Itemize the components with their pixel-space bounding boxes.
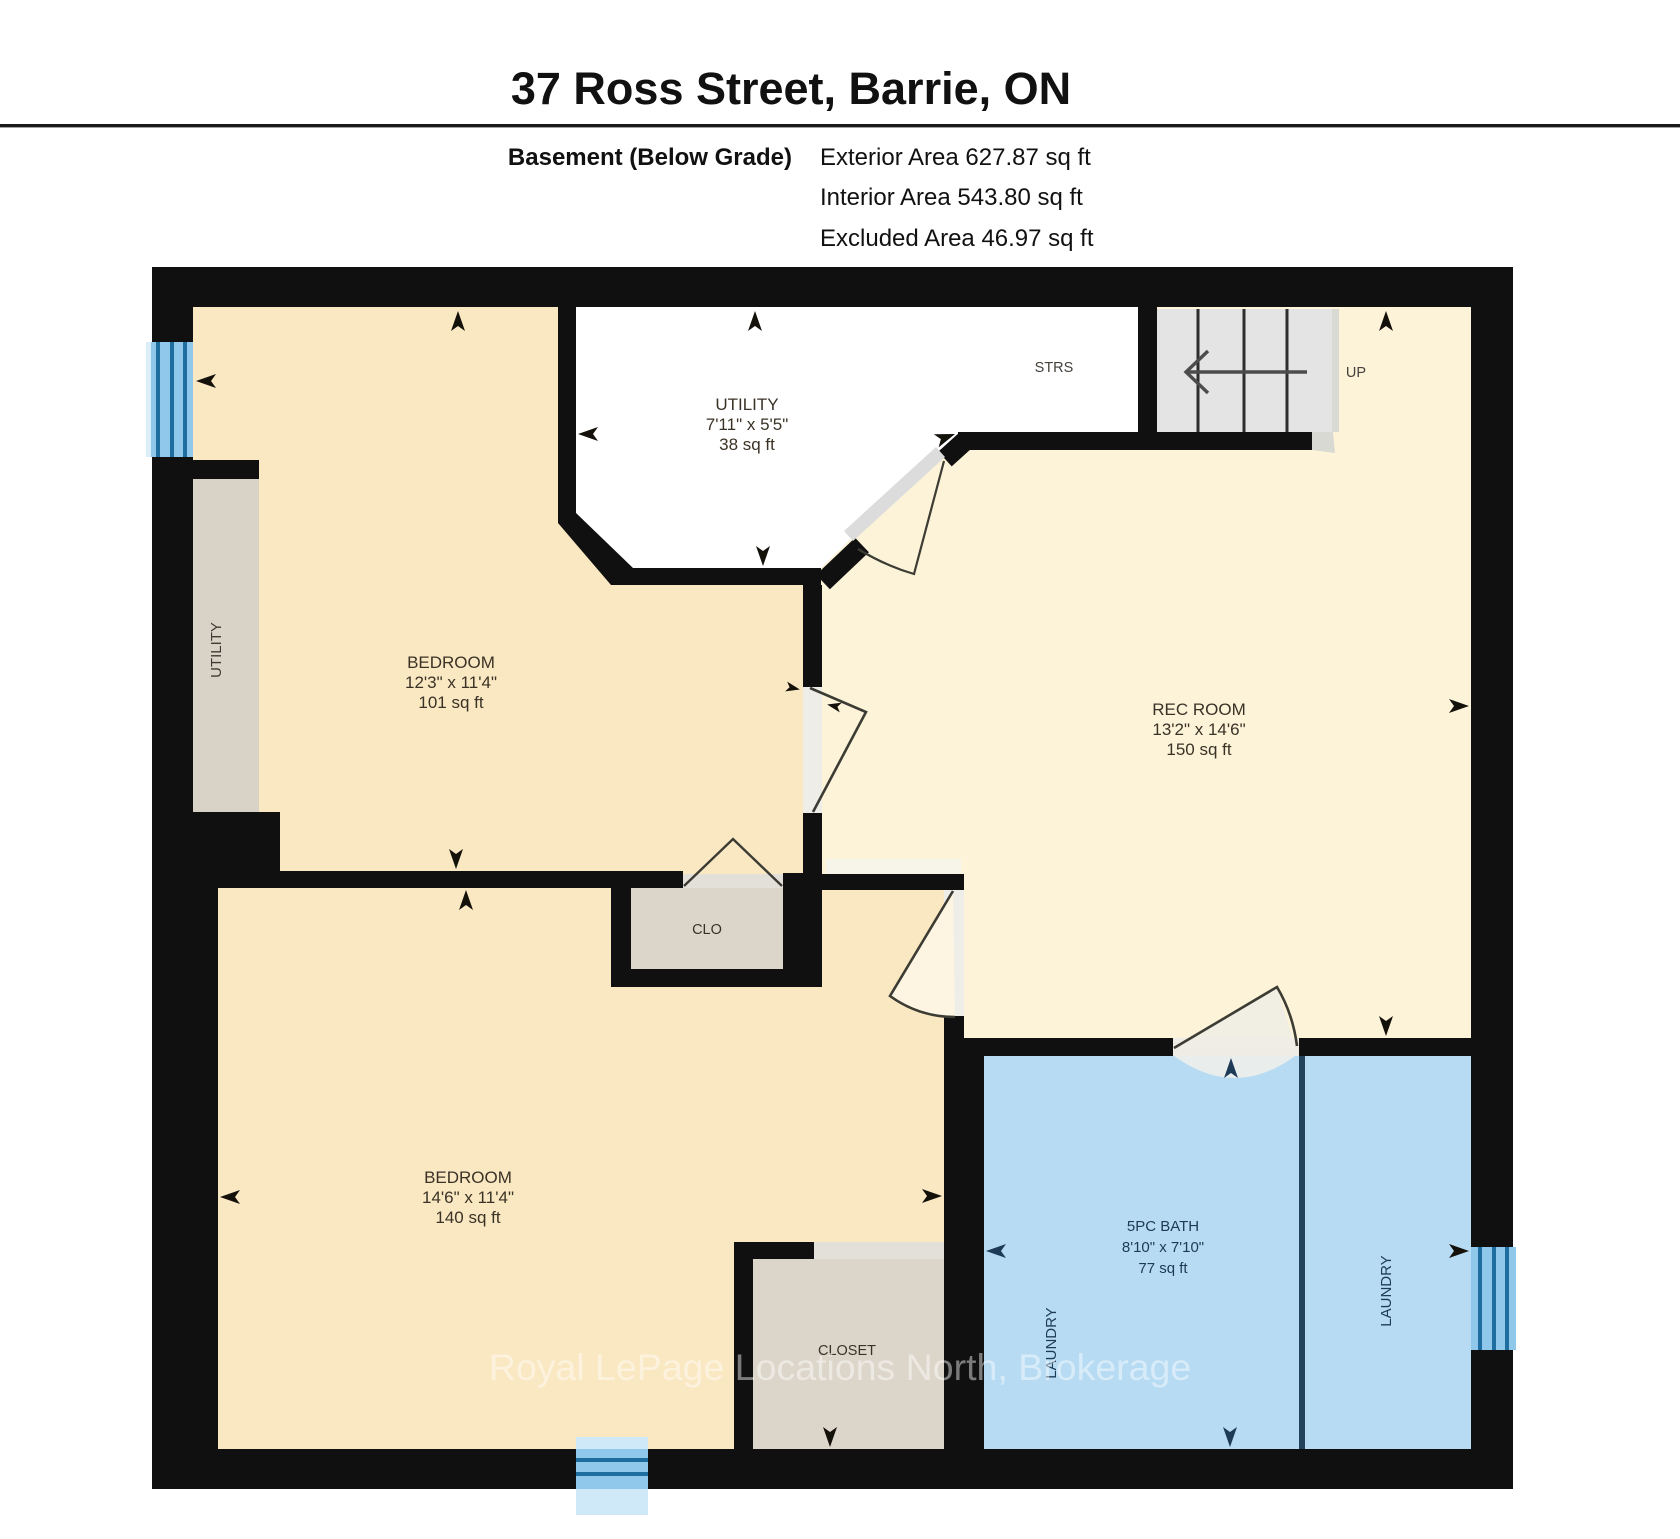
svg-text:38 sq ft: 38 sq ft: [719, 435, 775, 454]
svg-text:140 sq ft: 140 sq ft: [435, 1208, 500, 1227]
svg-text:Excluded Area 46.97 sq ft: Excluded Area 46.97 sq ft: [820, 225, 1094, 252]
svg-text:Interior Area 543.80 sq ft: Interior Area 543.80 sq ft: [820, 184, 1083, 211]
svg-text:UTILITY: UTILITY: [208, 622, 225, 678]
svg-text:Exterior Area 627.87 sq ft: Exterior Area 627.87 sq ft: [820, 144, 1091, 171]
svg-text:CLO: CLO: [692, 922, 722, 938]
svg-text:13'2" x 14'6": 13'2" x 14'6": [1152, 720, 1245, 739]
svg-text:BEDROOM: BEDROOM: [407, 653, 495, 672]
svg-text:8'10" x 7'10": 8'10" x 7'10": [1122, 1239, 1204, 1256]
svg-text:101 sq ft: 101 sq ft: [418, 693, 483, 712]
svg-text:UP: UP: [1346, 365, 1366, 381]
svg-text:UTILITY: UTILITY: [715, 395, 778, 414]
svg-text:150 sq ft: 150 sq ft: [1166, 740, 1231, 759]
svg-text:REC ROOM: REC ROOM: [1152, 700, 1246, 719]
svg-text:Basement (Below Grade): Basement (Below Grade): [508, 144, 792, 171]
svg-text:BEDROOM: BEDROOM: [424, 1168, 512, 1187]
svg-text:37 Ross Street, Barrie, ON: 37 Ross Street, Barrie, ON: [511, 63, 1071, 114]
svg-text:STRS: STRS: [1035, 360, 1074, 376]
svg-text:12'3" x 11'4": 12'3" x 11'4": [405, 673, 497, 692]
svg-text:LAUNDRY: LAUNDRY: [1378, 1255, 1395, 1326]
svg-text:7'11" x 5'5": 7'11" x 5'5": [706, 415, 789, 434]
svg-text:77 sq ft: 77 sq ft: [1138, 1260, 1188, 1277]
svg-text:Royal LePage Locations North,: Royal LePage Locations North, Brokerage: [489, 1346, 1192, 1388]
svg-text:14'6" x 11'4": 14'6" x 11'4": [422, 1188, 514, 1207]
svg-text:5PC BATH: 5PC BATH: [1127, 1218, 1199, 1235]
